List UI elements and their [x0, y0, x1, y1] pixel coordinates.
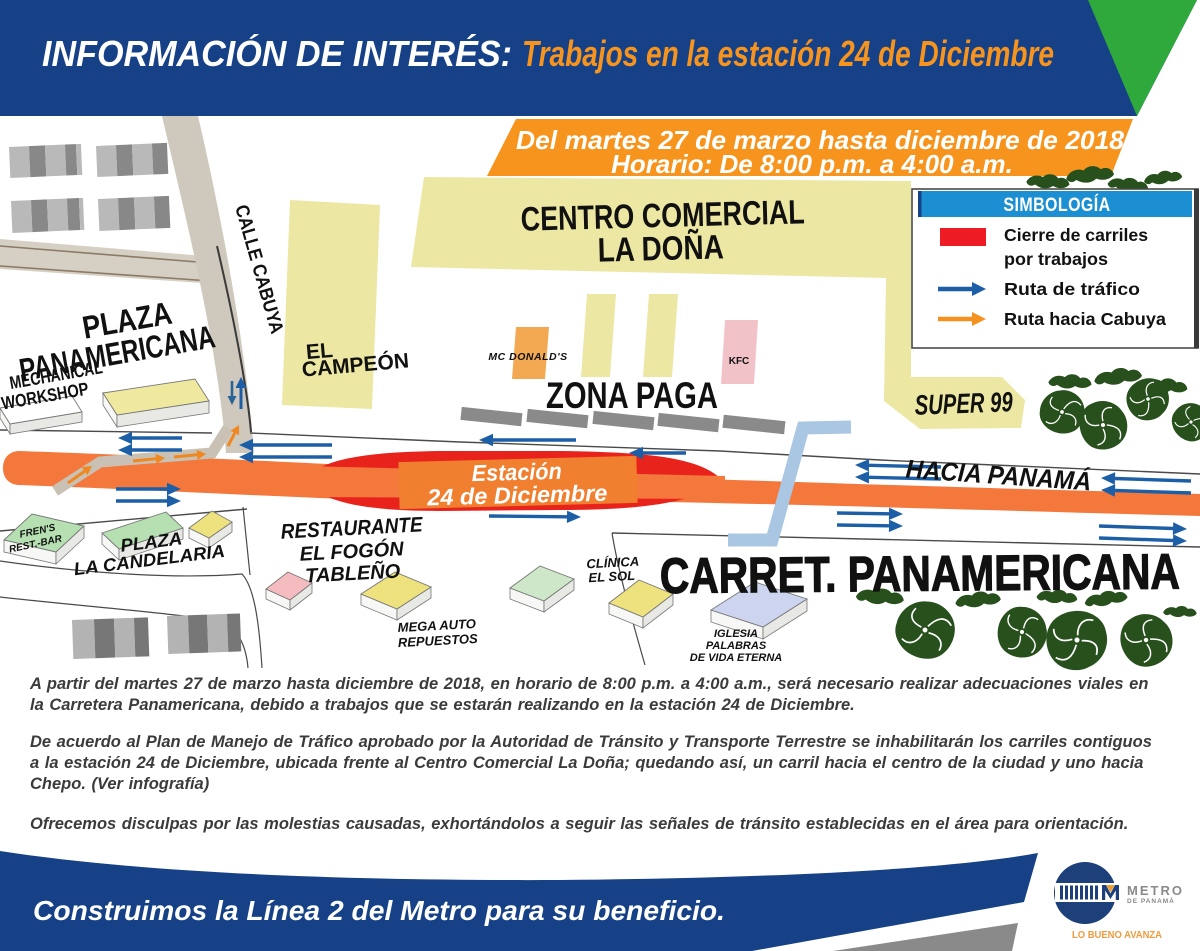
svg-text:METRO: METRO	[1127, 883, 1184, 898]
svg-text:CARRET. PANAMERICANA: CARRET. PANAMERICANA	[660, 543, 1180, 604]
svg-text:MC DONALD'S: MC DONALD'S	[488, 351, 567, 363]
svg-text:Cierre de carriles: Cierre de carriles	[1004, 225, 1148, 245]
svg-text:CALLE CABUYA: CALLE CABUYA	[230, 203, 287, 337]
svg-text:DE VIDA ETERNA: DE VIDA ETERNA	[690, 652, 783, 664]
svg-text:Construimos la Línea 2 del Met: Construimos la Línea 2 del Metro para su…	[33, 895, 725, 926]
svg-text:Ruta de tráfico: Ruta de tráfico	[1004, 279, 1140, 299]
svg-text:ZONA PAGA: ZONA PAGA	[546, 375, 718, 416]
svg-text:por trabajos: por trabajos	[1004, 249, 1108, 269]
svg-text:LA DOÑA: LA DOÑA	[597, 228, 724, 269]
svg-text:REPUESTOS: REPUESTOS	[397, 631, 478, 650]
svg-text:SUPER 99: SUPER 99	[914, 386, 1013, 420]
svg-text:DE PANAMÁ: DE PANAMÁ	[1127, 896, 1175, 905]
svg-text:EL SOL: EL SOL	[588, 568, 635, 585]
svg-text:Ruta hacia Cabuya: Ruta hacia Cabuya	[1004, 309, 1166, 329]
svg-text:24 de Diciembre: 24 de Diciembre	[426, 480, 608, 511]
svg-text:Horario: De 8:00 p.m. a 4:00 a: Horario: De 8:00 p.m. a 4:00 a.m.	[611, 149, 1013, 179]
svg-text:SIMBOLOGÍA: SIMBOLOGÍA	[1003, 192, 1110, 215]
svg-text:INFORMACIÓN DE INTERÉS:: INFORMACIÓN DE INTERÉS:	[42, 33, 512, 74]
svg-text:IGLESIA: IGLESIA	[714, 628, 758, 640]
svg-text:KFC: KFC	[729, 356, 750, 367]
svg-text:Trabajos en la estación 24 de: Trabajos en la estación 24 de Diciembre	[522, 33, 1054, 74]
svg-text:PALABRAS: PALABRAS	[706, 640, 767, 652]
svg-text:LO BUENO AVANZA: LO BUENO AVANZA	[1072, 929, 1162, 941]
